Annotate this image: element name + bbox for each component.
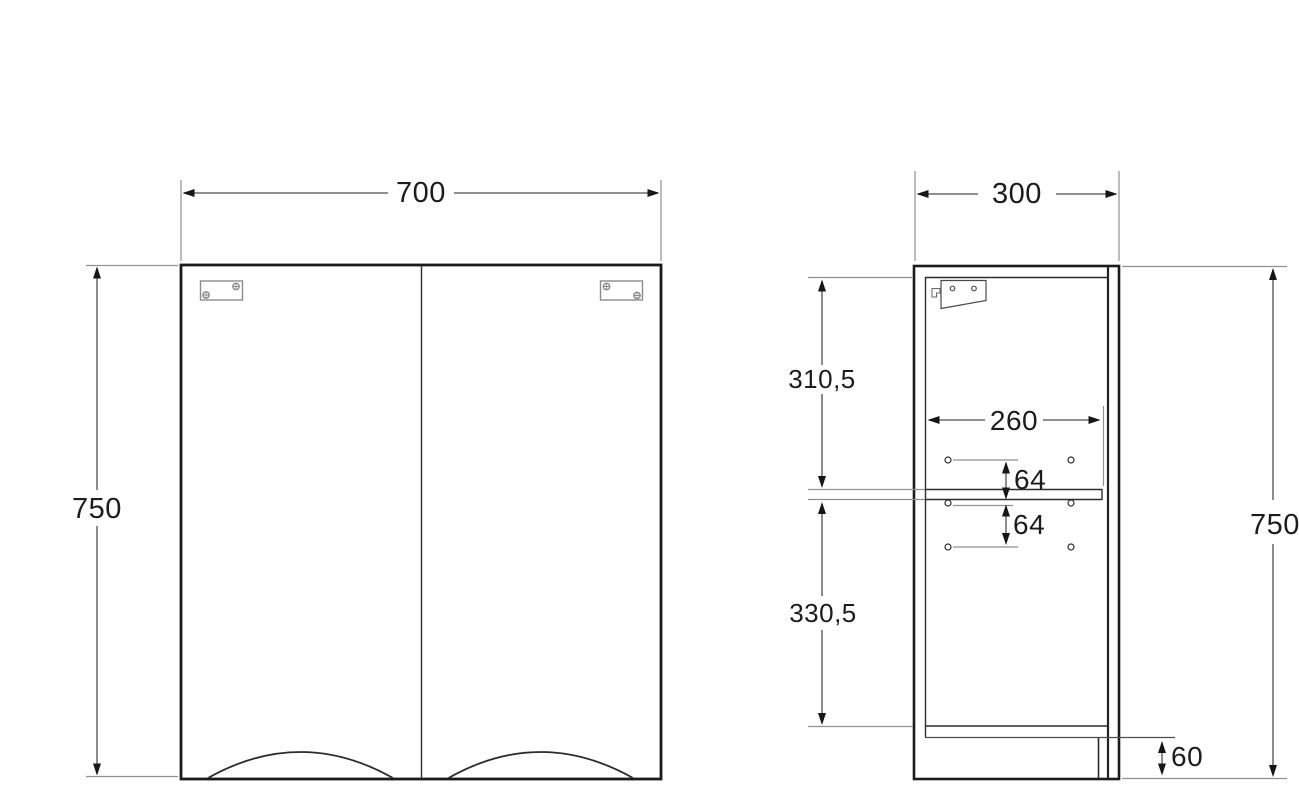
shelf-pin-holes [945, 457, 1074, 550]
front-width-label: 700 [396, 177, 446, 209]
hole [1068, 544, 1074, 550]
technical-drawing-canvas: 700 750 [0, 0, 1299, 800]
dimension-shelf-to-bottom: 330,5 [789, 502, 913, 727]
shelf-extension-lines [808, 490, 925, 500]
hole [945, 457, 951, 463]
side-view [808, 266, 1175, 779]
hole-pitch-upper-label: 64 [1014, 464, 1046, 495]
top-to-shelf-label: 310,5 [788, 364, 856, 394]
front-height-label: 750 [72, 493, 122, 525]
front-view [181, 265, 661, 779]
hinge-left-icon [201, 281, 243, 300]
hole [1068, 500, 1074, 506]
hole [1068, 457, 1074, 463]
hinge-right-icon [601, 281, 643, 300]
side-depth-label: 300 [992, 178, 1042, 210]
bottom-offset-label: 60 [1171, 741, 1203, 772]
hole [945, 544, 951, 550]
dimension-front-height: 750 [72, 266, 178, 777]
dimension-side-depth: 300 [915, 171, 1119, 261]
dimension-hole-pitch-lower: 64 [1002, 505, 1045, 546]
dimension-bottom-offset: 60 [1158, 741, 1203, 776]
wall-bracket-icon [932, 281, 986, 309]
cabinet-drawing: 700 750 [0, 0, 1299, 800]
hole [945, 500, 951, 506]
bracket-hook-icon [932, 289, 940, 298]
side-height-label: 750 [1250, 509, 1299, 541]
dimension-front-width: 700 [181, 177, 661, 261]
door-handle-arcs [208, 752, 633, 778]
hole-pitch-lower-label: 64 [1013, 509, 1045, 540]
dimension-hole-pitch-upper: 64 [1002, 462, 1046, 500]
shelf [808, 489, 1102, 500]
dimension-top-to-shelf: 310,5 [788, 278, 912, 489]
internal-depth-label: 260 [990, 405, 1038, 436]
dimension-side-height: 750 [1122, 267, 1299, 779]
shelf-to-bottom-label: 330,5 [789, 598, 857, 628]
